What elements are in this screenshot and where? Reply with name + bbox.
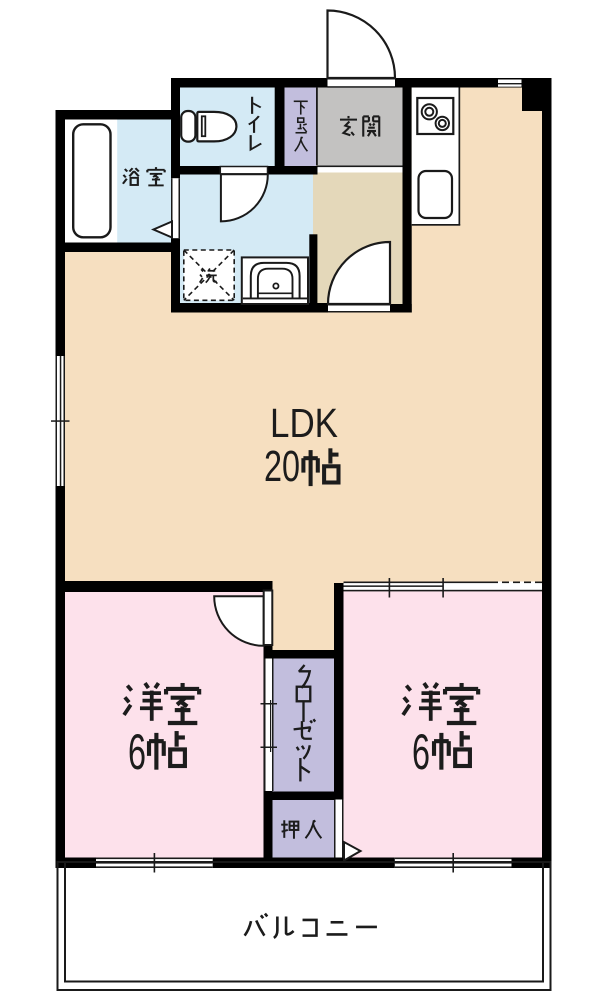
svg-text:LDK: LDK [270,400,338,446]
svg-text:6: 6 [412,724,430,780]
svg-text:6: 6 [128,724,146,780]
svg-text:20: 20 [264,442,300,491]
